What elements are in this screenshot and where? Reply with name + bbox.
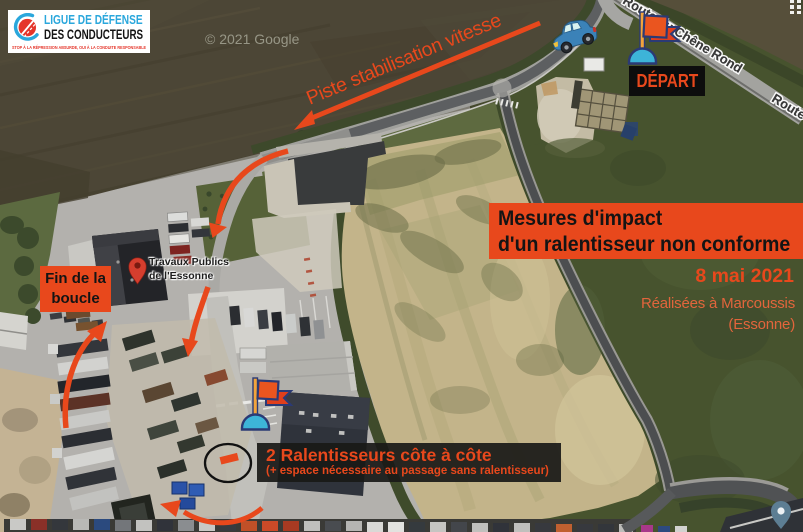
svg-text:© 2021 Google: © 2021 Google	[205, 31, 300, 47]
